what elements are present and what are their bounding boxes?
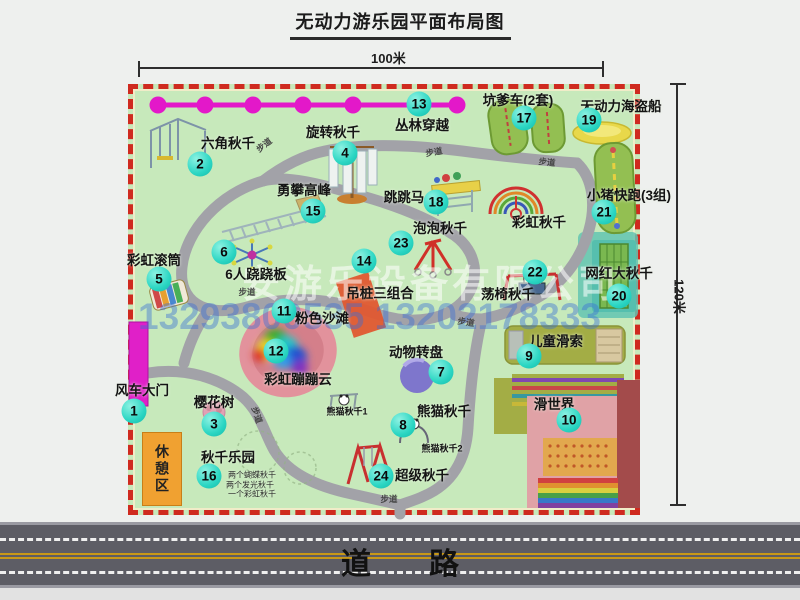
screenshot-root: 无动力游乐园平面布局图 100米 120米 [0,0,800,600]
header: 无动力游乐园平面布局图 [0,8,800,40]
dimension-label-width: 100米 [371,48,406,67]
page-title: 无动力游乐园平面布局图 [290,8,511,40]
rest-area: 休憩区 [142,432,182,506]
rest-area-label: 休憩区 [152,444,172,495]
road-label: 道路 [0,539,800,583]
road-shoulder [0,588,800,600]
dimension-label-height: 120米 [671,277,690,317]
dimension-line-width [138,67,604,69]
park-map [128,84,640,515]
road: 道路 [0,522,800,588]
